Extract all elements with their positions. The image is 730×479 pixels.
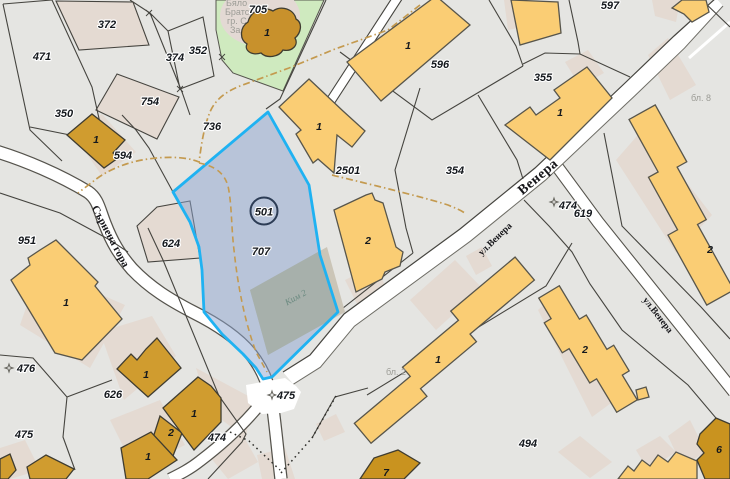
svg-text:471: 471 bbox=[32, 51, 51, 63]
svg-text:За: За bbox=[230, 25, 240, 35]
svg-text:1: 1 bbox=[93, 134, 99, 146]
svg-text:501: 501 bbox=[255, 207, 273, 219]
svg-text:597: 597 bbox=[601, 0, 620, 12]
svg-text:2: 2 bbox=[581, 344, 588, 356]
svg-text:2501: 2501 bbox=[335, 165, 360, 177]
svg-text:707: 707 bbox=[252, 246, 271, 258]
svg-text:736: 736 bbox=[203, 121, 222, 133]
svg-text:1: 1 bbox=[557, 107, 563, 119]
svg-text:626: 626 bbox=[104, 389, 123, 401]
svg-text:2: 2 bbox=[364, 235, 371, 247]
svg-text:624: 624 bbox=[162, 238, 180, 250]
svg-text:754: 754 bbox=[141, 96, 159, 108]
svg-text:1: 1 bbox=[435, 354, 441, 366]
svg-text:951: 951 bbox=[18, 235, 36, 247]
svg-text:1: 1 bbox=[264, 27, 270, 39]
svg-text:350: 350 bbox=[55, 108, 74, 120]
svg-text:355: 355 bbox=[534, 72, 553, 84]
svg-text:2: 2 bbox=[167, 427, 174, 439]
svg-text:бл. 2: бл. 2 bbox=[386, 367, 406, 377]
svg-text:1: 1 bbox=[405, 40, 411, 52]
svg-text:1: 1 bbox=[316, 121, 322, 133]
svg-text:1: 1 bbox=[145, 451, 151, 463]
svg-text:бл. 8: бл. 8 bbox=[691, 93, 711, 103]
svg-text:475: 475 bbox=[276, 390, 296, 402]
svg-text:2: 2 bbox=[706, 244, 713, 256]
svg-text:372: 372 bbox=[98, 19, 116, 31]
svg-text:6: 6 bbox=[716, 444, 722, 456]
svg-text:596: 596 bbox=[431, 59, 450, 71]
svg-text:1: 1 bbox=[143, 369, 149, 381]
svg-text:619: 619 bbox=[574, 208, 593, 220]
svg-text:1: 1 bbox=[63, 297, 69, 309]
svg-text:475: 475 bbox=[14, 429, 34, 441]
svg-text:594: 594 bbox=[114, 150, 132, 162]
svg-text:705: 705 bbox=[249, 4, 268, 16]
svg-text:474: 474 bbox=[207, 432, 226, 444]
svg-text:374: 374 bbox=[166, 52, 184, 64]
svg-text:494: 494 bbox=[518, 438, 537, 450]
svg-text:354: 354 bbox=[446, 165, 464, 177]
svg-text:352: 352 bbox=[189, 45, 207, 57]
svg-text:476: 476 bbox=[16, 363, 36, 375]
svg-text:1: 1 bbox=[191, 408, 197, 420]
